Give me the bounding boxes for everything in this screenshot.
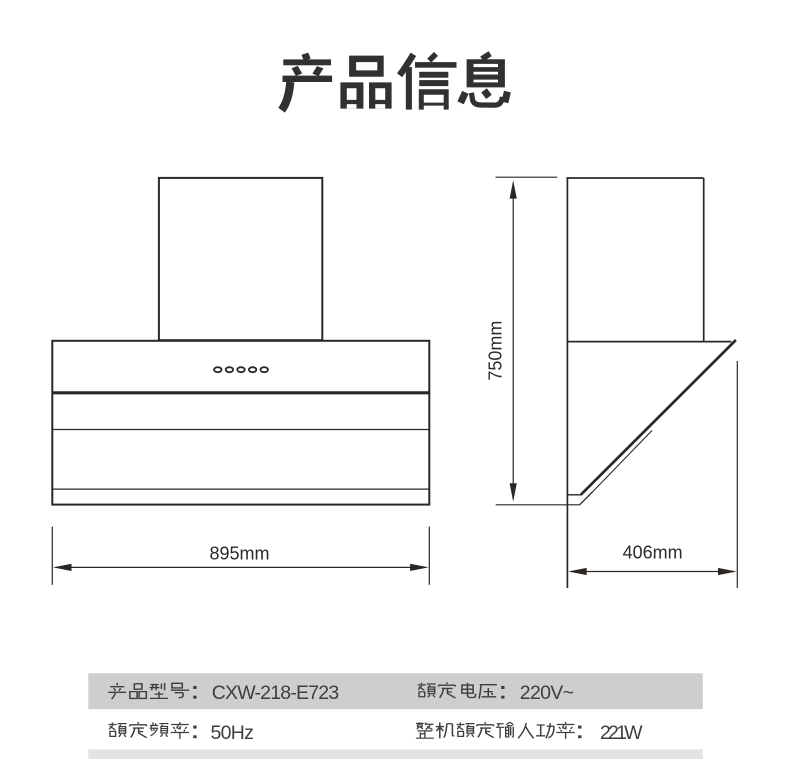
svg-text:CXW-218-E723: CXW-218-E723: [212, 682, 340, 704]
svg-text:895mm: 895mm: [209, 544, 269, 564]
svg-text:221W: 221W: [600, 722, 643, 744]
svg-text:220V~: 220V~: [520, 682, 574, 704]
svg-text:750mm: 750mm: [486, 321, 506, 381]
svg-text:406mm: 406mm: [623, 542, 683, 562]
svg-text:50Hz: 50Hz: [211, 722, 254, 744]
